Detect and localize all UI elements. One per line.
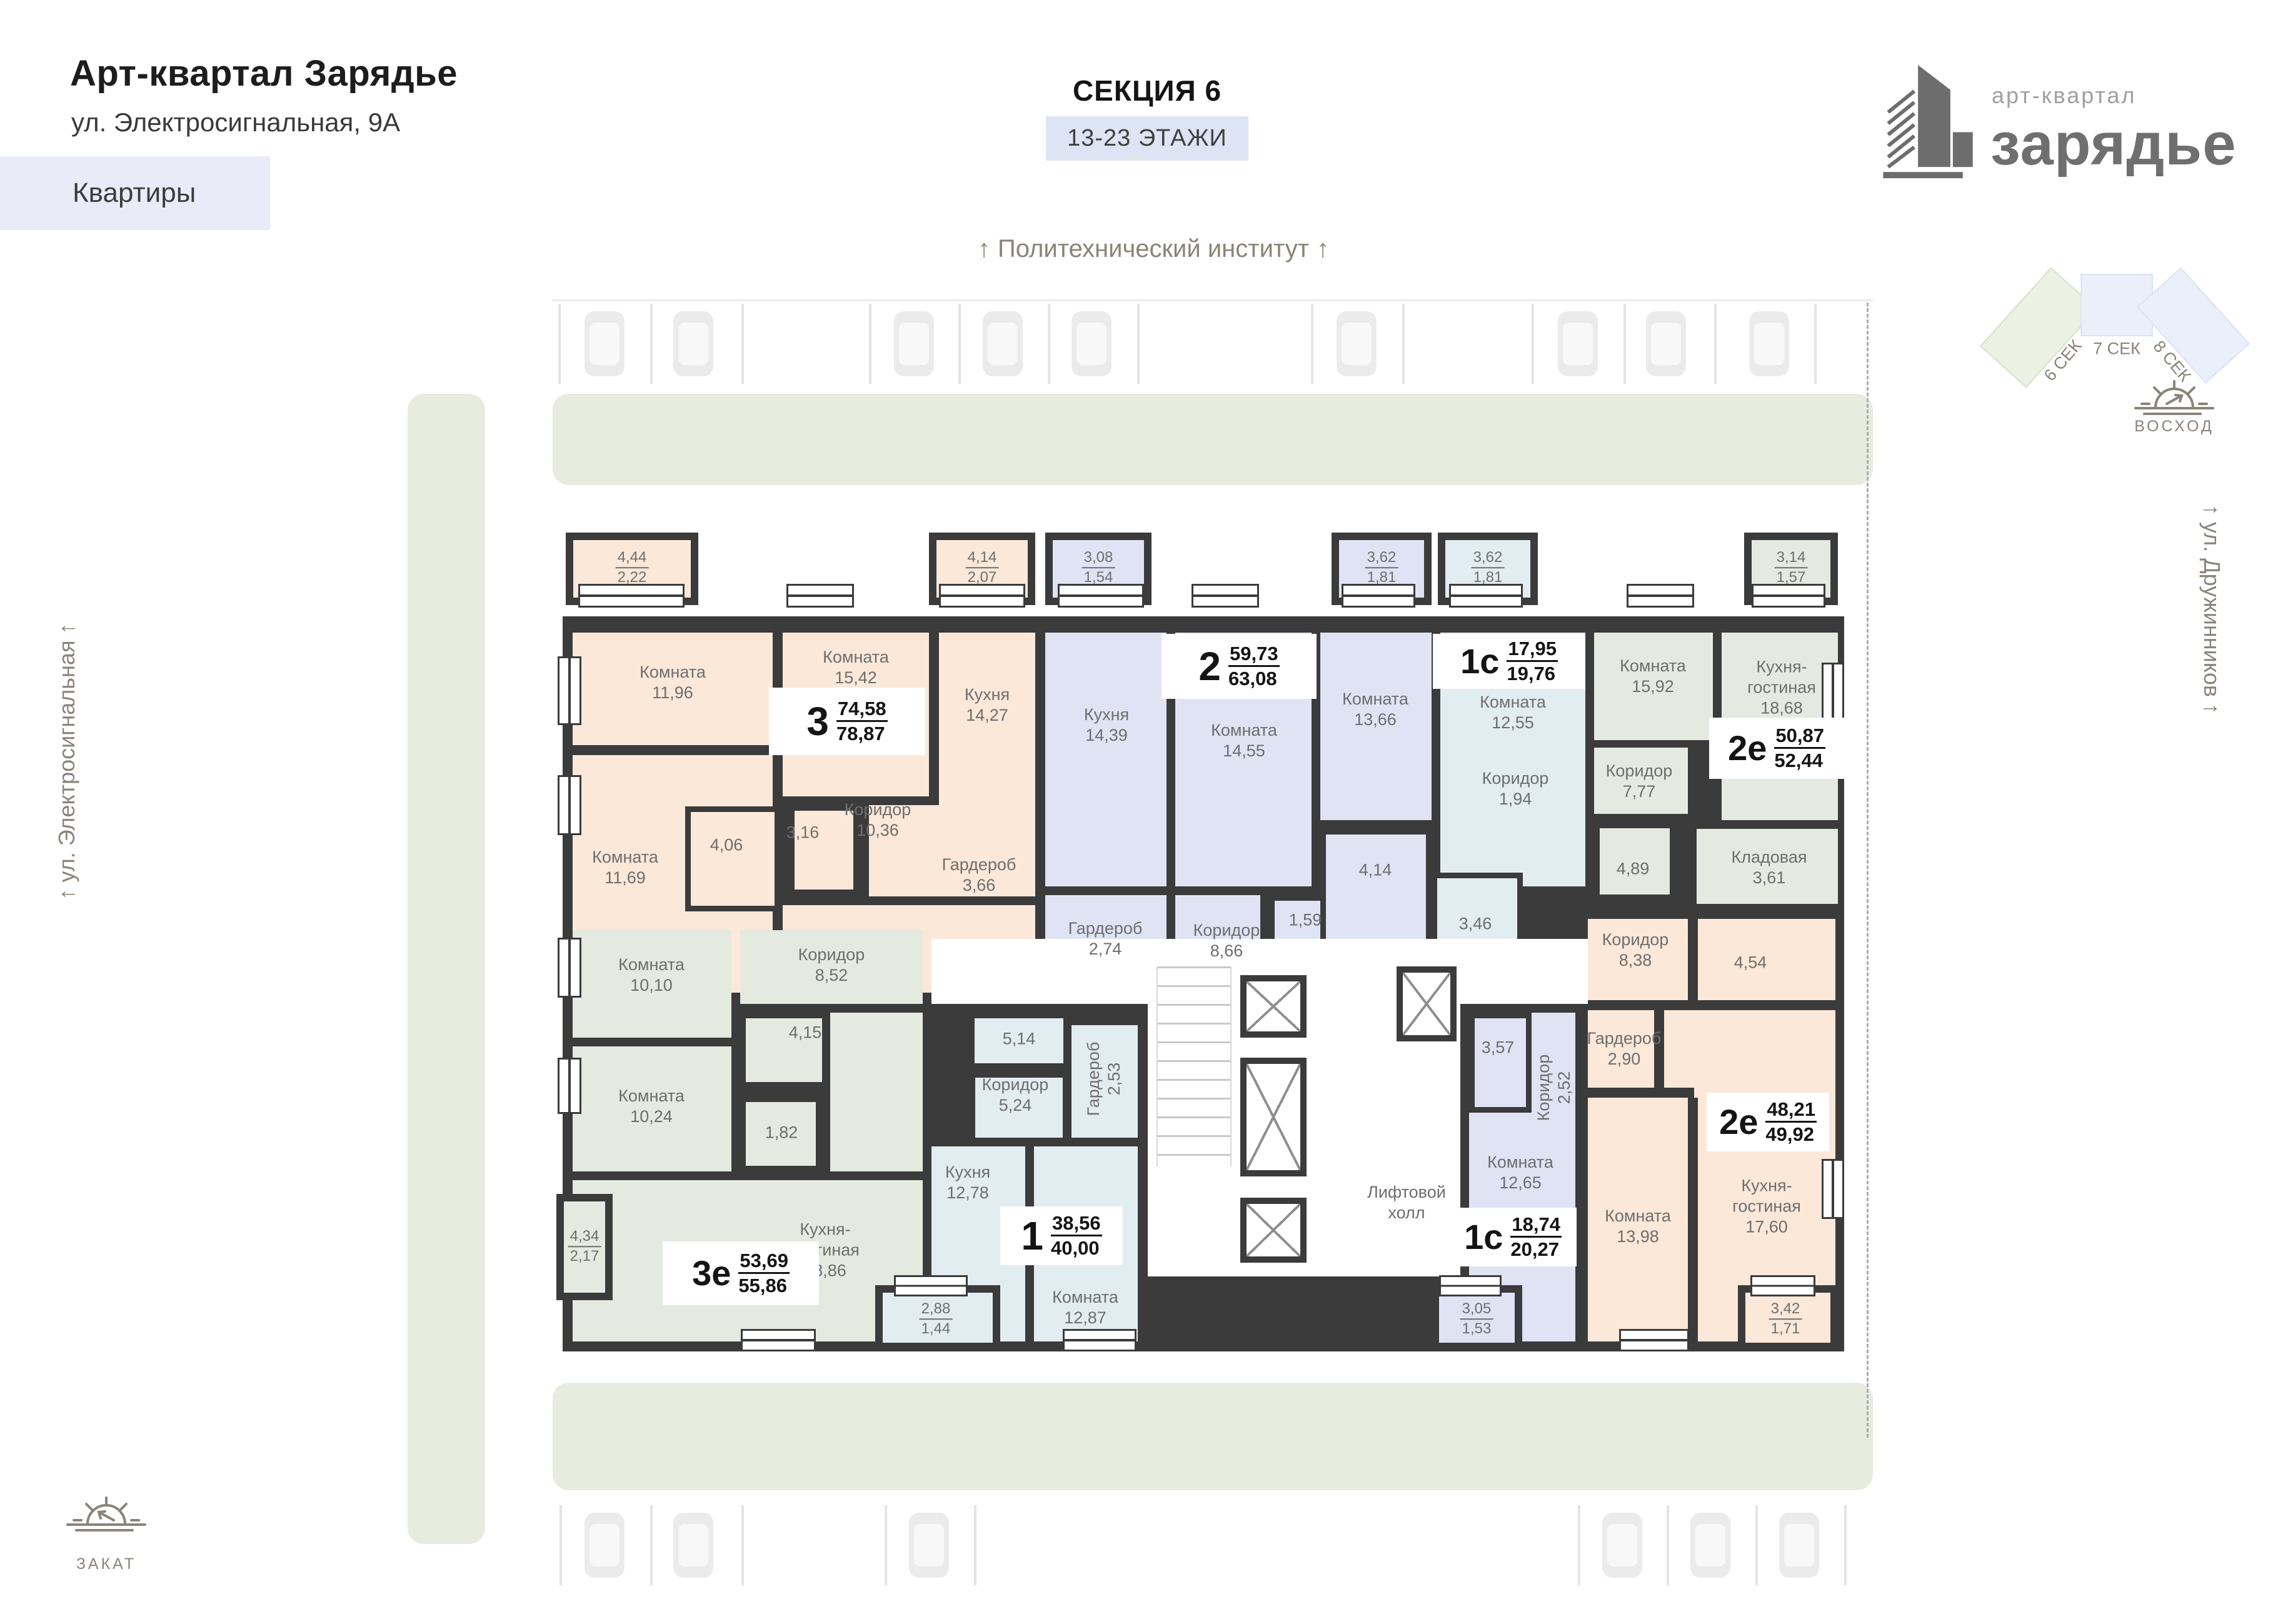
elevator-shaft: [1240, 1198, 1307, 1263]
car-icon: [1337, 311, 1377, 376]
room-label: Коридор5,24: [982, 1075, 1049, 1116]
window: [1619, 1329, 1689, 1351]
room-label: Комната12,65: [1487, 1152, 1553, 1193]
parking-edge-line: [553, 299, 1873, 301]
room-label: Коридор1,94: [1482, 768, 1549, 809]
room[interactable]: [685, 806, 780, 911]
parking-divider: [1311, 304, 1313, 384]
window: [1822, 1159, 1844, 1219]
window: [894, 1275, 968, 1296]
window: [1627, 584, 1694, 608]
parking-divider: [1714, 304, 1717, 384]
apartment-areas: 17,9519,76: [1507, 636, 1558, 687]
room-label: 4,442,22: [616, 548, 649, 587]
elevator-shaft: [1397, 966, 1457, 1041]
car-icon: [1646, 311, 1686, 376]
window: [558, 1058, 581, 1114]
room-label: 1,82: [765, 1123, 798, 1143]
room-label: Комната13,66: [1342, 689, 1408, 730]
car-icon: [1071, 311, 1111, 376]
room-label: 5,14: [1003, 1029, 1036, 1050]
apartment-areas: 48,2149,92: [1765, 1097, 1817, 1148]
apartment-badge[interactable]: 2е50,8752,44: [1709, 718, 1844, 779]
apartment-areas: 59,7363,08: [1228, 641, 1280, 692]
room-label: Комната10,10: [618, 955, 685, 996]
room-label: 1,59: [1289, 910, 1322, 931]
room-label: Комната15,92: [1620, 656, 1686, 697]
room-label: Коридор7,77: [1606, 761, 1673, 802]
room-label: 4,89: [1617, 859, 1650, 880]
apartment-badge[interactable]: 259,7363,08: [1162, 634, 1317, 699]
car-icon: [585, 1513, 625, 1578]
window: [786, 584, 854, 608]
room-label: Кухня12,78: [945, 1162, 990, 1203]
car-icon: [673, 311, 713, 376]
car-icon: [1558, 311, 1598, 376]
parking-divider: [1048, 304, 1050, 384]
room-label: 3,421,71: [1769, 1300, 1802, 1338]
room-label: 3,46: [1459, 914, 1492, 935]
apartment-badge[interactable]: 1с17,9519,76: [1433, 634, 1585, 689]
apartment-areas: 38,5640,00: [1051, 1211, 1102, 1261]
window: [741, 1329, 816, 1351]
car-icon: [585, 311, 625, 376]
room-label: 4,14: [1359, 860, 1392, 881]
staircase: [1157, 966, 1232, 1166]
floor-plan-page: Арт-квартал Зарядье ул. Электросигнальна…: [0, 0, 2278, 1624]
room-label: Кладовая3,61: [1732, 847, 1807, 888]
apartment-type: 2е: [1728, 731, 1767, 766]
elevator-shaft: [1240, 975, 1307, 1038]
room-label: Комната12,87: [1052, 1287, 1118, 1328]
room-label: Кухня-гостиная18,68: [1747, 657, 1816, 719]
room-label: Кухня14,27: [965, 684, 1010, 726]
window: [1342, 584, 1415, 608]
parking-divider: [650, 1505, 653, 1585]
car-icon: [909, 1513, 949, 1578]
apartment-type: 3: [806, 701, 829, 741]
window: [1192, 584, 1259, 608]
parking-divider: [958, 304, 961, 384]
room[interactable]: [830, 1013, 923, 1171]
wall: [1688, 919, 1698, 1010]
window: [558, 656, 581, 725]
parking-divider: [1137, 304, 1140, 384]
room[interactable]: [1469, 1013, 1532, 1113]
window: [1439, 1275, 1502, 1296]
apartment-type: 3е: [692, 1256, 731, 1291]
parking-divider: [1578, 1505, 1580, 1585]
apartment-badge[interactable]: 1с18,7420,27: [1449, 1208, 1577, 1266]
green-area: [408, 394, 485, 1544]
car-icon: [983, 311, 1023, 376]
room-label: Комната11,69: [592, 847, 658, 888]
parking-divider: [869, 304, 871, 384]
room-label: Коридор10,36: [845, 799, 911, 841]
room-label: 3,081,54: [1082, 548, 1115, 587]
parking-divider: [1755, 1505, 1758, 1585]
room[interactable]: [939, 633, 1035, 820]
parking-divider: [974, 1505, 976, 1585]
apartment-areas: 50,8752,44: [1774, 723, 1825, 774]
room-label: 4,06: [710, 835, 743, 856]
parking-divider: [1814, 304, 1817, 384]
room-label: Гардероб3,66: [942, 855, 1016, 896]
parking-divider: [741, 1505, 744, 1585]
room-label: 3,621,81: [1365, 548, 1398, 587]
parking-divider: [1532, 304, 1534, 384]
floor-plan: 4,442,224,142,073,081,543,621,813,621,81…: [0, 0, 2278, 1624]
car-icon: [1749, 311, 1789, 376]
room-label: Комната13,98: [1605, 1206, 1671, 1247]
room[interactable]: [1045, 633, 1167, 886]
window: [558, 938, 581, 998]
room-label: 4,342,17: [568, 1227, 601, 1266]
apartment-areas: 18,7420,27: [1510, 1212, 1562, 1263]
parking-divider: [885, 1505, 887, 1585]
parking-divider: [1623, 304, 1626, 384]
car-icon: [673, 1513, 713, 1578]
apartment-areas: 53,6955,86: [738, 1248, 790, 1299]
window: [1822, 663, 1844, 723]
parking-divider: [1844, 1505, 1847, 1585]
parking-divider: [559, 1505, 562, 1585]
apartment-areas: 74,5878,87: [836, 696, 888, 747]
room-label: Комната15,42: [823, 647, 889, 688]
room-label: Гардероб2,74: [1068, 918, 1143, 960]
parking-divider: [741, 304, 744, 384]
apartment-type: 1с: [1460, 644, 1499, 679]
room-label: 4,15: [789, 1023, 822, 1043]
room-label: Комната12,55: [1480, 692, 1546, 733]
room-label: Кухня14,39: [1084, 704, 1129, 746]
room-label: 4,54: [1734, 953, 1767, 973]
room-label: 3,621,81: [1472, 548, 1505, 587]
window: [939, 584, 1025, 608]
window: [1063, 1329, 1136, 1351]
parking-divider: [1402, 304, 1405, 384]
room-label: Комната10,24: [618, 1086, 685, 1127]
window: [1752, 584, 1825, 608]
boundary-dashed-line: [1867, 303, 1869, 1438]
room-label: Коридор8,52: [798, 945, 865, 986]
wall: [1588, 1000, 1835, 1010]
room-label: 3,051,53: [1460, 1300, 1493, 1338]
room-label: Коридор8,66: [1193, 920, 1260, 961]
room-label: Кухня-гостиная17,60: [1732, 1176, 1801, 1238]
apartment-badge[interactable]: 2е48,2149,92: [1707, 1093, 1829, 1151]
room-label: Гардероб2,53: [1083, 1042, 1125, 1116]
room-label: Коридор2,52: [1533, 1055, 1575, 1121]
apartment-badge[interactable]: 374,5878,87: [769, 688, 925, 755]
room-label: Лифтовойхолл: [1367, 1182, 1446, 1223]
window: [578, 584, 685, 608]
apartment-type: 2: [1198, 646, 1221, 686]
car-icon: [894, 311, 934, 376]
room-label: Коридор8,38: [1602, 930, 1669, 971]
parking-divider: [558, 304, 561, 384]
apartment-type: 2е: [1719, 1105, 1758, 1140]
room-label: 4,142,07: [966, 548, 999, 587]
room-label: 3,141,57: [1775, 548, 1808, 587]
room-label: Комната14,55: [1211, 720, 1277, 761]
window: [1449, 584, 1523, 608]
window: [1750, 1275, 1815, 1296]
green-area: [553, 1383, 1873, 1490]
green-area: [553, 394, 1873, 485]
window: [558, 775, 581, 835]
elevator-shaft: [1240, 1058, 1307, 1176]
car-icon: [1690, 1513, 1730, 1578]
room-label: 3,16: [786, 823, 820, 843]
parking-divider: [1667, 1505, 1669, 1585]
car-icon: [1779, 1513, 1819, 1578]
car-icon: [1602, 1513, 1642, 1578]
apartment-type: 1: [1021, 1216, 1043, 1256]
apartment-type: 1с: [1464, 1220, 1503, 1255]
room-label: Комната11,96: [640, 662, 706, 703]
parking-divider: [650, 304, 653, 384]
room-label: 2,881,44: [920, 1300, 953, 1338]
room-label: 3,57: [1482, 1038, 1515, 1058]
window: [1058, 584, 1144, 608]
wall: [1688, 1098, 1698, 1341]
apartment-badge[interactable]: 138,5640,00: [1000, 1206, 1123, 1265]
apartment-badge[interactable]: 3е53,6955,86: [663, 1241, 819, 1305]
room-label: Гардероб2,90: [1587, 1028, 1662, 1070]
wall: [1588, 1088, 1694, 1098]
